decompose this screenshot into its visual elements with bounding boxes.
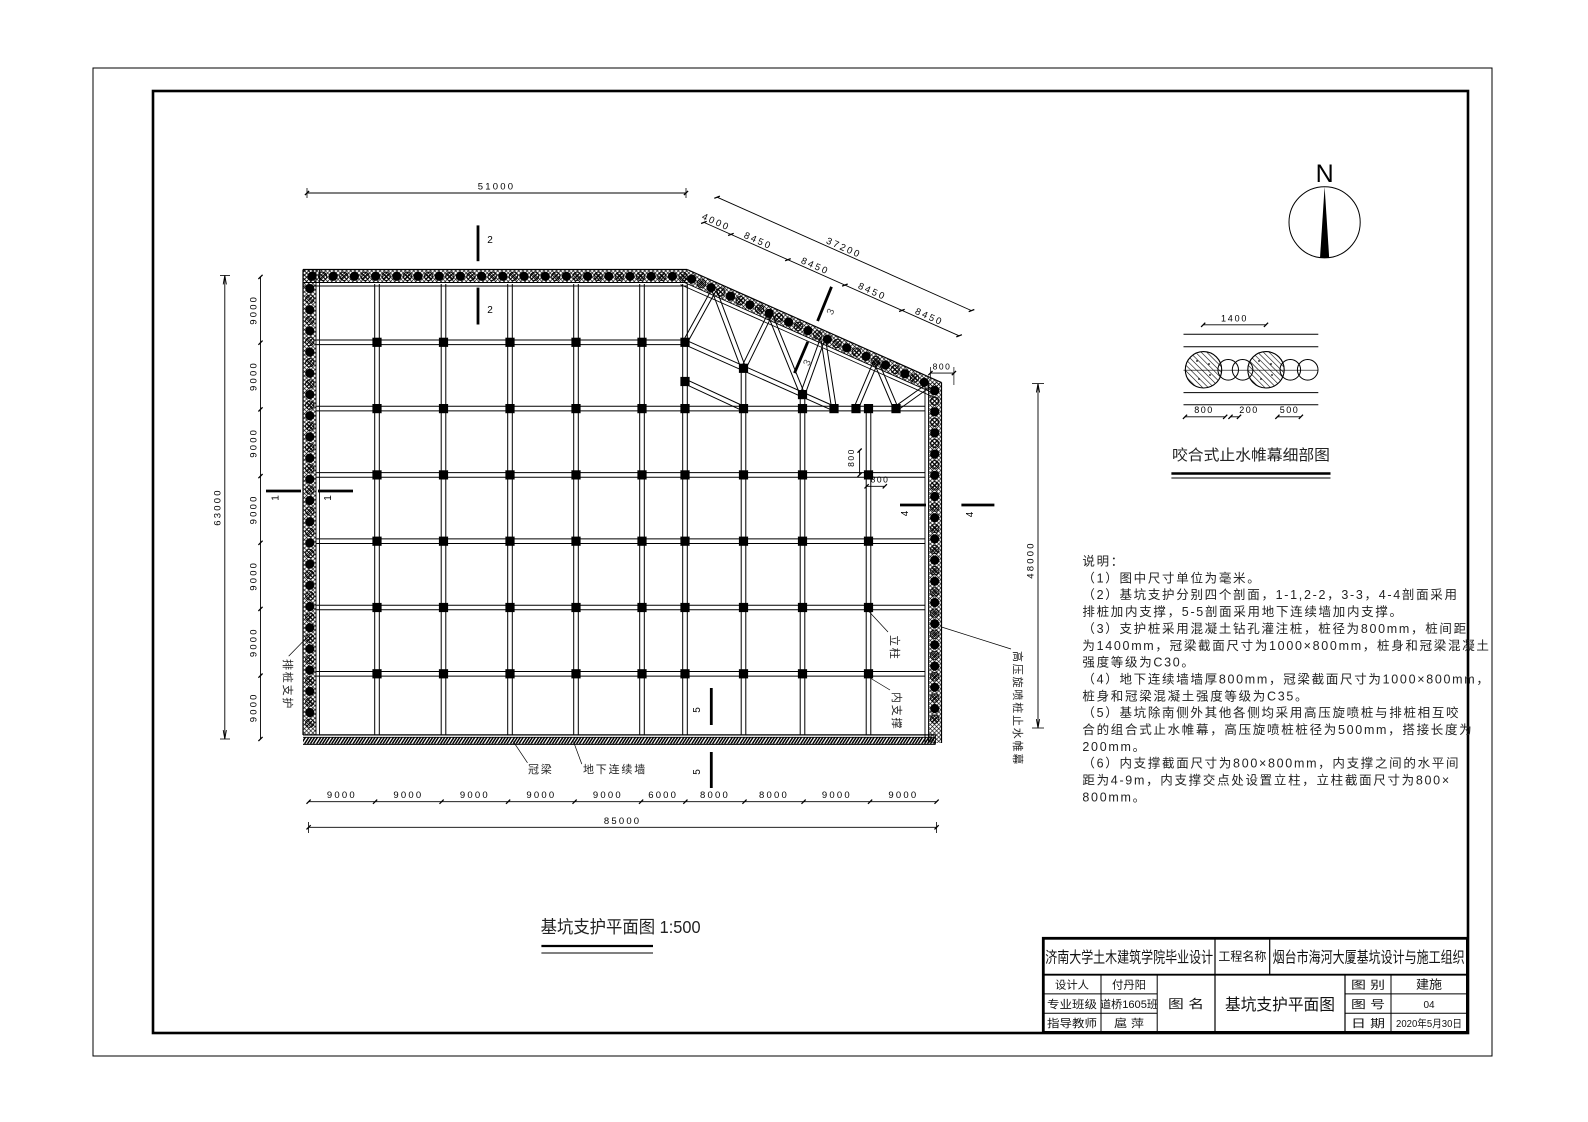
svg-text:51000: 51000: [478, 182, 515, 193]
svg-text:（1）图中尺寸单位为毫米。: （1）图中尺寸单位为毫米。: [1082, 570, 1261, 585]
svg-text:800mm。: 800mm。: [1082, 790, 1146, 804]
svg-text:图 名: 图 名: [1168, 996, 1204, 1011]
svg-text:烟台市海河大厦基坑设计与施工组织: 烟台市海河大厦基坑设计与施工组织: [1273, 949, 1465, 967]
svg-text:排桩支护: 排桩支护: [281, 659, 295, 710]
svg-text:说明：: 说明：: [1082, 554, 1125, 569]
svg-text:200mm。: 200mm。: [1082, 740, 1146, 754]
svg-text:咬合式止水帷幕细部图: 咬合式止水帷幕细部图: [1172, 446, 1330, 464]
svg-text:桩身和冠梁混凝土强度等级为C35。: 桩身和冠梁混凝土强度等级为C35。: [1082, 688, 1309, 703]
svg-text:2020年5月30日: 2020年5月30日: [1396, 1017, 1462, 1030]
svg-text:立柱: 立柱: [888, 635, 902, 661]
svg-text:9000: 9000: [822, 790, 852, 801]
svg-text:48000: 48000: [1026, 541, 1037, 578]
svg-text:N: N: [1316, 160, 1334, 188]
svg-text:高压旋喷桩止水帷幕: 高压旋喷桩止水帷幕: [1011, 651, 1025, 766]
svg-text:付丹阳: 付丹阳: [1112, 979, 1146, 992]
svg-text:为1400mm，冠梁截面尺寸为1000×800mm，桩身和冠: 为1400mm，冠梁截面尺寸为1000×800mm，桩身和冠梁混凝土: [1082, 638, 1490, 653]
svg-text:专业班级: 专业班级: [1047, 997, 1097, 1011]
svg-text:5: 5: [692, 769, 703, 775]
svg-text:800: 800: [1194, 405, 1214, 415]
svg-text:济南大学土木建筑学院毕业设计: 济南大学土木建筑学院毕业设计: [1045, 948, 1213, 967]
svg-text:9000: 9000: [249, 627, 260, 657]
svg-text:9000: 9000: [249, 494, 260, 524]
svg-text:9000: 9000: [593, 790, 623, 801]
svg-text:强度等级为C30。: 强度等级为C30。: [1082, 655, 1195, 670]
svg-text:设计人: 设计人: [1055, 979, 1089, 992]
svg-text:合的组合式止水帷幕，高压旋喷桩桩径为500mm，搭接长度为: 合的组合式止水帷幕，高压旋喷桩桩径为500mm，搭接长度为: [1082, 722, 1473, 737]
svg-text:基坑支护平面图 1:500: 基坑支护平面图 1:500: [541, 917, 701, 937]
svg-text:1: 1: [271, 495, 282, 501]
svg-text:1400: 1400: [1221, 314, 1248, 324]
svg-text:9000: 9000: [249, 295, 260, 325]
svg-text:4: 4: [900, 510, 911, 516]
svg-text:内支撑: 内支撑: [890, 692, 904, 730]
svg-text:9000: 9000: [249, 428, 260, 458]
svg-text:地下连续墙: 地下连续墙: [583, 762, 647, 776]
svg-text:扈 萍: 扈 萍: [1114, 1016, 1144, 1030]
svg-text:图 别: 图 别: [1351, 979, 1385, 992]
svg-text:800: 800: [846, 448, 856, 467]
svg-text:指导教师: 指导教师: [1047, 1016, 1097, 1030]
svg-text:800: 800: [933, 362, 952, 372]
svg-text:9000: 9000: [249, 361, 260, 391]
svg-text:4: 4: [965, 511, 976, 517]
svg-text:（4）地下连续墙墙厚800mm，冠梁截面尺寸为1000×80: （4）地下连续墙墙厚800mm，冠梁截面尺寸为1000×800mm，: [1082, 672, 1490, 687]
svg-text:建施: 建施: [1416, 978, 1442, 992]
svg-text:8000: 8000: [759, 790, 789, 801]
svg-text:（5）基坑除南侧外其他各侧均采用高压旋喷桩与排桩相互咬: （5）基坑除南侧外其他各侧均采用高压旋喷桩与排桩相互咬: [1082, 705, 1460, 720]
svg-text:（3）支护桩采用混凝土钻孔灌注桩，桩径为800mm，桩间距: （3）支护桩采用混凝土钻孔灌注桩，桩径为800mm，桩间距: [1082, 621, 1467, 636]
svg-text:排桩加内支撑，5-5剖面采用地下连续墙加内支撑。: 排桩加内支撑，5-5剖面采用地下连续墙加内支撑。: [1082, 604, 1403, 619]
svg-text:（2）基坑支护分别四个剖面，1-1,2-2，3-3，4-4剖: （2）基坑支护分别四个剖面，1-1,2-2，3-3，4-4剖面采用: [1082, 587, 1458, 602]
svg-text:500: 500: [1280, 405, 1300, 415]
svg-text:9000: 9000: [393, 790, 423, 801]
svg-text:道桥1605班: 道桥1605班: [1100, 997, 1158, 1011]
svg-text:9000: 9000: [327, 790, 357, 801]
svg-text:04: 04: [1423, 1000, 1435, 1011]
svg-text:9000: 9000: [249, 561, 260, 591]
svg-text:9000: 9000: [888, 790, 918, 801]
svg-text:9000: 9000: [249, 692, 260, 722]
svg-text:工程名称: 工程名称: [1218, 949, 1266, 964]
svg-text:图 号: 图 号: [1351, 998, 1385, 1011]
svg-text:85000: 85000: [604, 816, 641, 827]
svg-text:冠梁: 冠梁: [528, 762, 554, 776]
svg-text:（6）内支撑截面尺寸为800×800mm，内支撑之间的水平间: （6）内支撑截面尺寸为800×800mm，内支撑之间的水平间: [1082, 756, 1460, 771]
svg-text:9000: 9000: [526, 790, 556, 801]
svg-text:800: 800: [871, 475, 890, 485]
svg-text:8000: 8000: [700, 790, 730, 801]
svg-text:2: 2: [487, 305, 493, 316]
svg-text:63000: 63000: [213, 488, 224, 525]
svg-text:基坑支护平面图: 基坑支护平面图: [1225, 996, 1335, 1014]
svg-text:5: 5: [692, 707, 703, 713]
svg-text:距为4-9m，内支撑交点处设置立柱，立柱截面尺寸为800×: 距为4-9m，内支撑交点处设置立柱，立柱截面尺寸为800×: [1082, 773, 1450, 788]
svg-text:9000: 9000: [460, 790, 490, 801]
svg-text:日 期: 日 期: [1351, 1017, 1385, 1030]
svg-text:2: 2: [487, 235, 493, 246]
svg-text:1: 1: [323, 495, 334, 501]
svg-text:6000: 6000: [648, 790, 678, 801]
svg-text:200: 200: [1239, 405, 1259, 415]
